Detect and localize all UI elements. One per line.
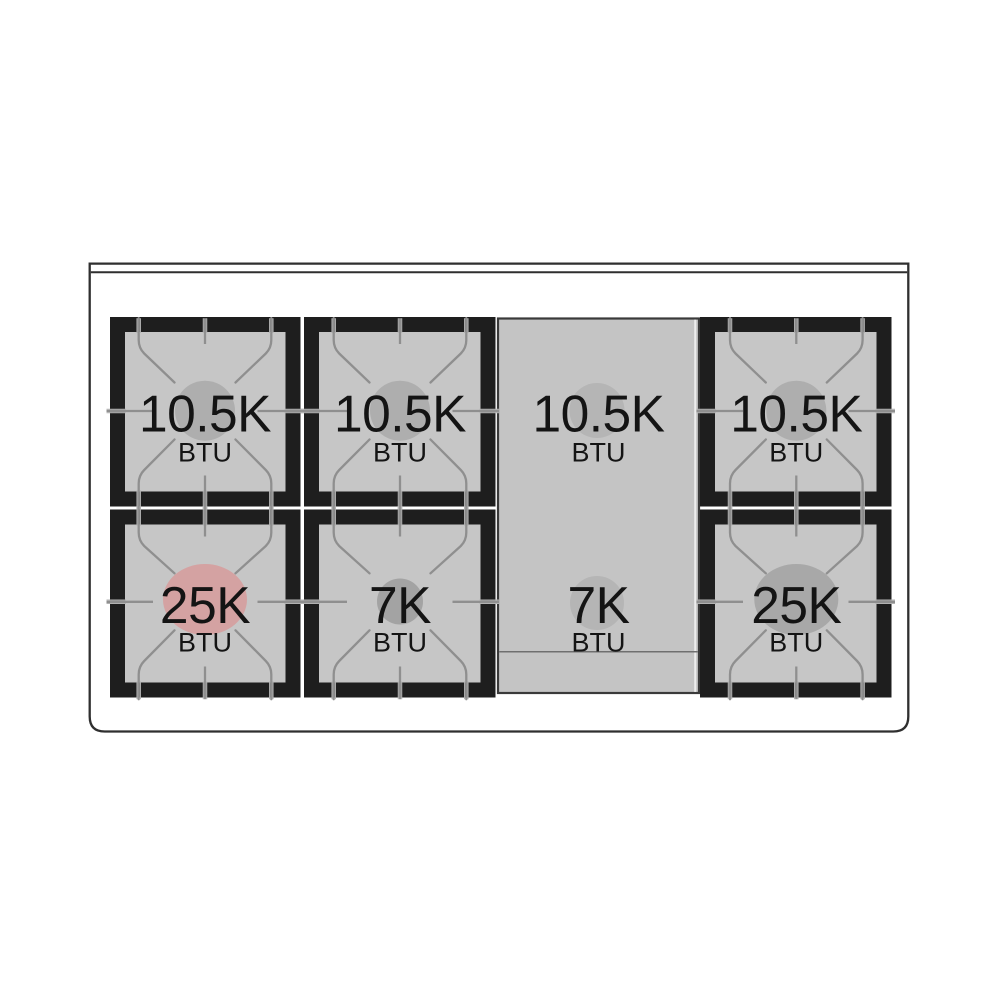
svg-text:BTU: BTU	[178, 628, 232, 658]
svg-text:25K: 25K	[160, 576, 250, 634]
svg-text:7K: 7K	[568, 576, 630, 634]
svg-text:BTU: BTU	[373, 628, 427, 658]
svg-text:BTU: BTU	[769, 628, 823, 658]
svg-text:BTU: BTU	[572, 437, 626, 467]
svg-text:BTU: BTU	[769, 437, 823, 467]
svg-text:BTU: BTU	[373, 437, 427, 467]
svg-text:BTU: BTU	[572, 628, 626, 658]
svg-text:25K: 25K	[751, 576, 841, 634]
svg-text:10.5K: 10.5K	[730, 385, 862, 443]
svg-text:10.5K: 10.5K	[334, 385, 466, 443]
svg-text:7K: 7K	[369, 576, 431, 634]
svg-text:10.5K: 10.5K	[532, 385, 664, 443]
svg-text:10.5K: 10.5K	[139, 385, 271, 443]
svg-text:BTU: BTU	[178, 437, 232, 467]
